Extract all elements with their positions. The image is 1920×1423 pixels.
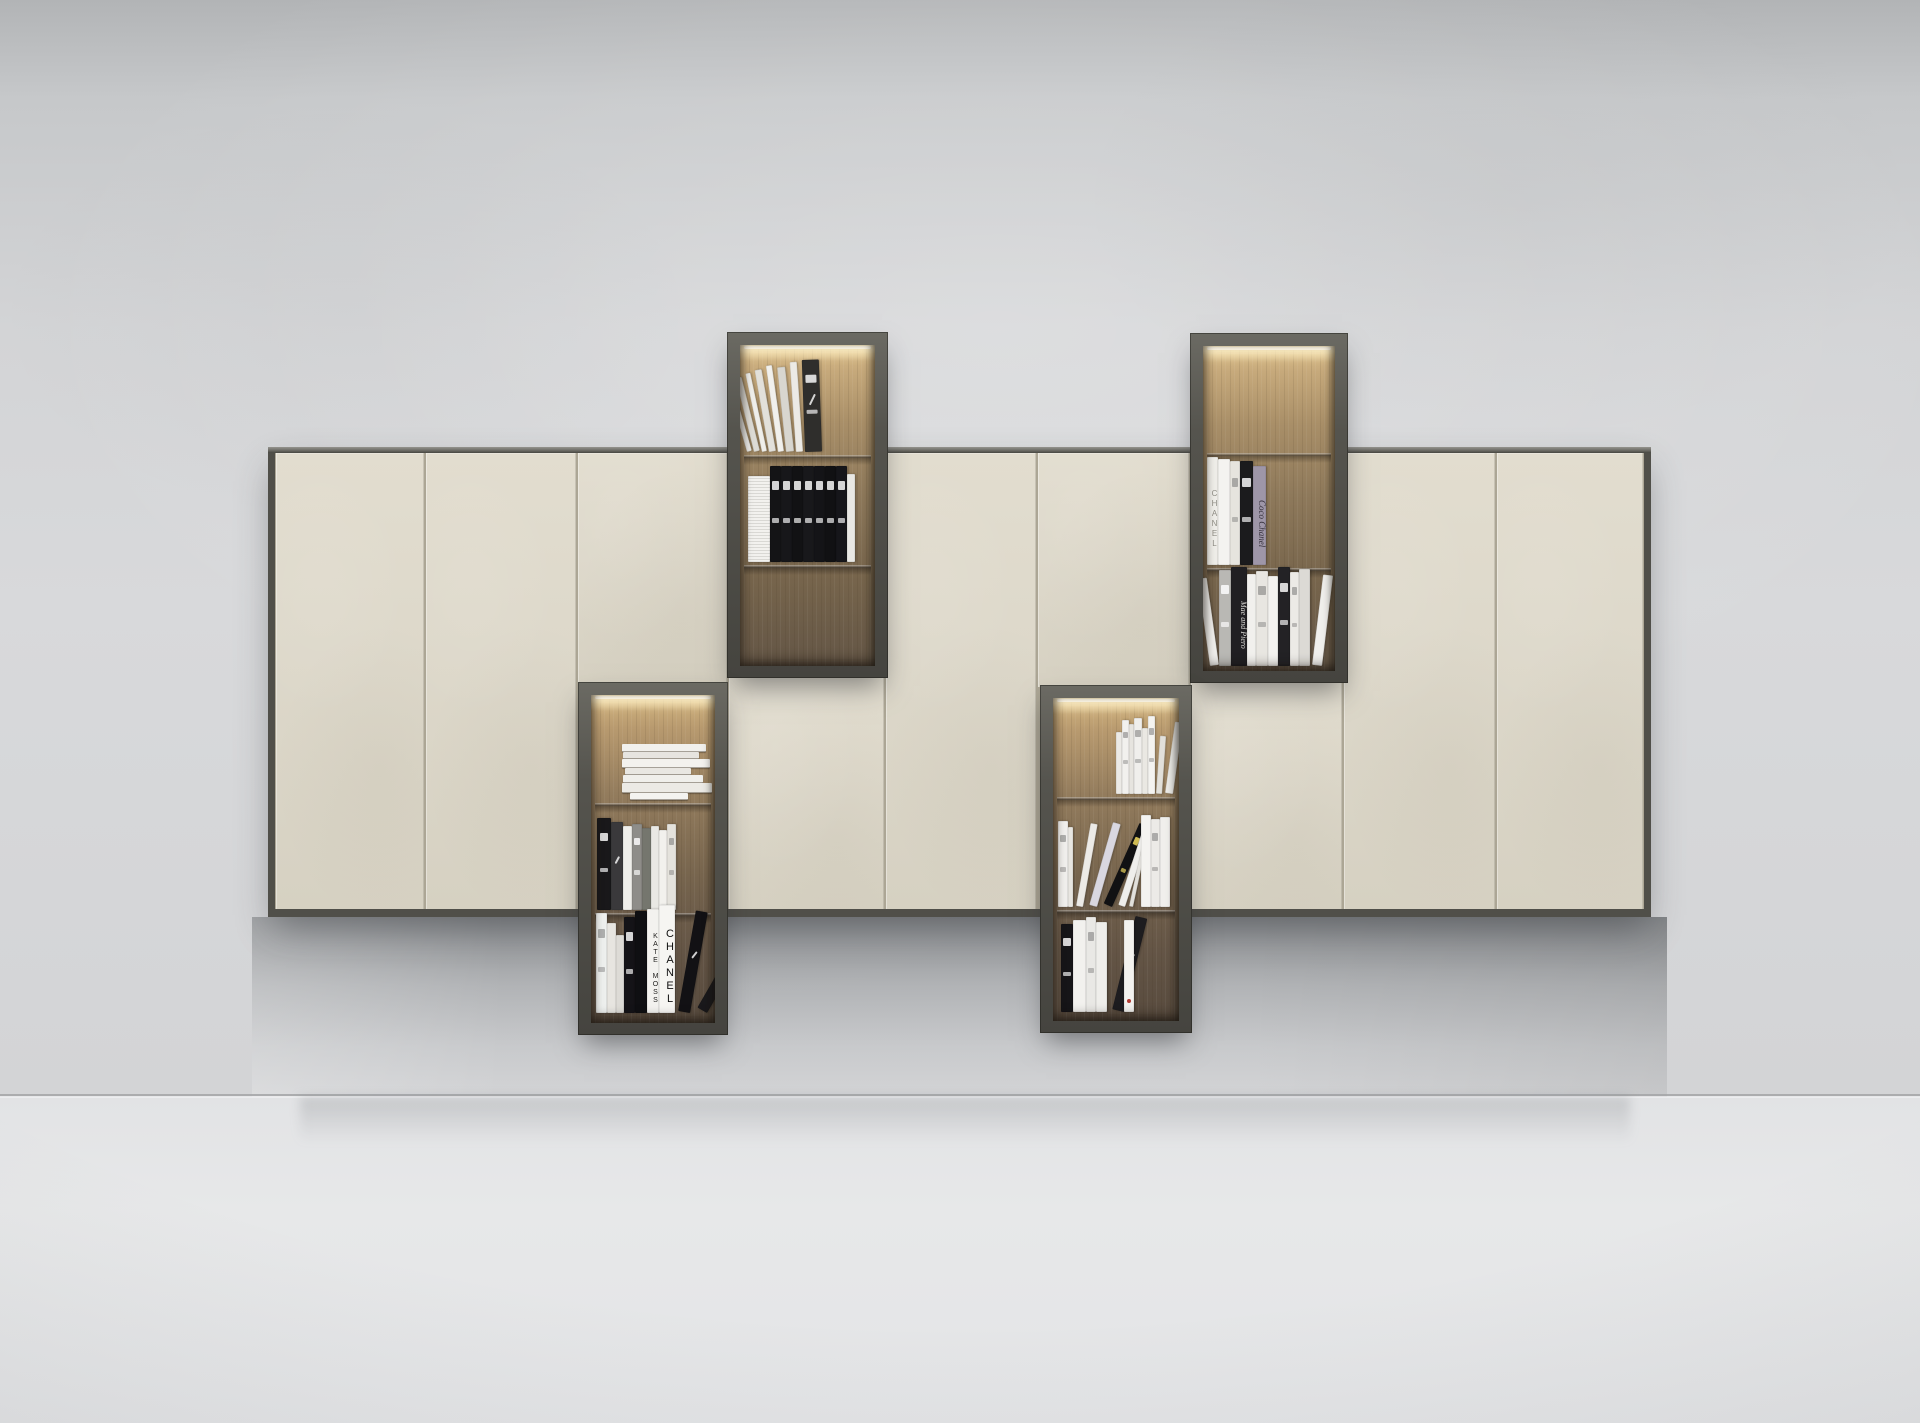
interior-shading bbox=[1203, 346, 1335, 671]
floor bbox=[0, 1097, 1920, 1423]
cabinet-door-1 bbox=[276, 453, 424, 909]
interior-shading bbox=[740, 345, 875, 666]
interior-shading bbox=[591, 695, 715, 1023]
cabinet-door-7 bbox=[1191, 681, 1342, 909]
niche-top-right: CHANELCoco ChanelMae and Piero bbox=[1190, 333, 1348, 683]
niche-top-left bbox=[727, 332, 888, 678]
niche-bottom-left-interior: KATE MOSSCHANEL bbox=[591, 695, 715, 1023]
scene: CHANELCoco ChanelMae and PieroKATE MOSSC… bbox=[0, 0, 1920, 1423]
shadow-under-cabinet bbox=[252, 917, 1667, 1097]
cabinet-door-3 bbox=[578, 453, 727, 684]
niche-bottom-right bbox=[1040, 685, 1192, 1033]
wall-cabinet bbox=[268, 447, 1651, 917]
niche-bottom-left: KATE MOSSCHANEL bbox=[578, 682, 728, 1035]
niche-top-left-interior bbox=[740, 345, 875, 666]
niche-top-right-interior: CHANELCoco ChanelMae and Piero bbox=[1203, 346, 1335, 671]
cabinet-door-6 bbox=[1038, 453, 1189, 687]
floor-reflection bbox=[300, 1097, 1630, 1143]
interior-shading bbox=[1053, 698, 1179, 1021]
cabinet-door-4 bbox=[729, 676, 884, 909]
niche-bottom-right-interior bbox=[1053, 698, 1179, 1021]
cabinet-door-2 bbox=[426, 453, 576, 909]
cabinet-door-9 bbox=[1497, 453, 1643, 909]
cabinet-door-5 bbox=[886, 453, 1036, 909]
cabinet-door-8 bbox=[1344, 453, 1495, 909]
